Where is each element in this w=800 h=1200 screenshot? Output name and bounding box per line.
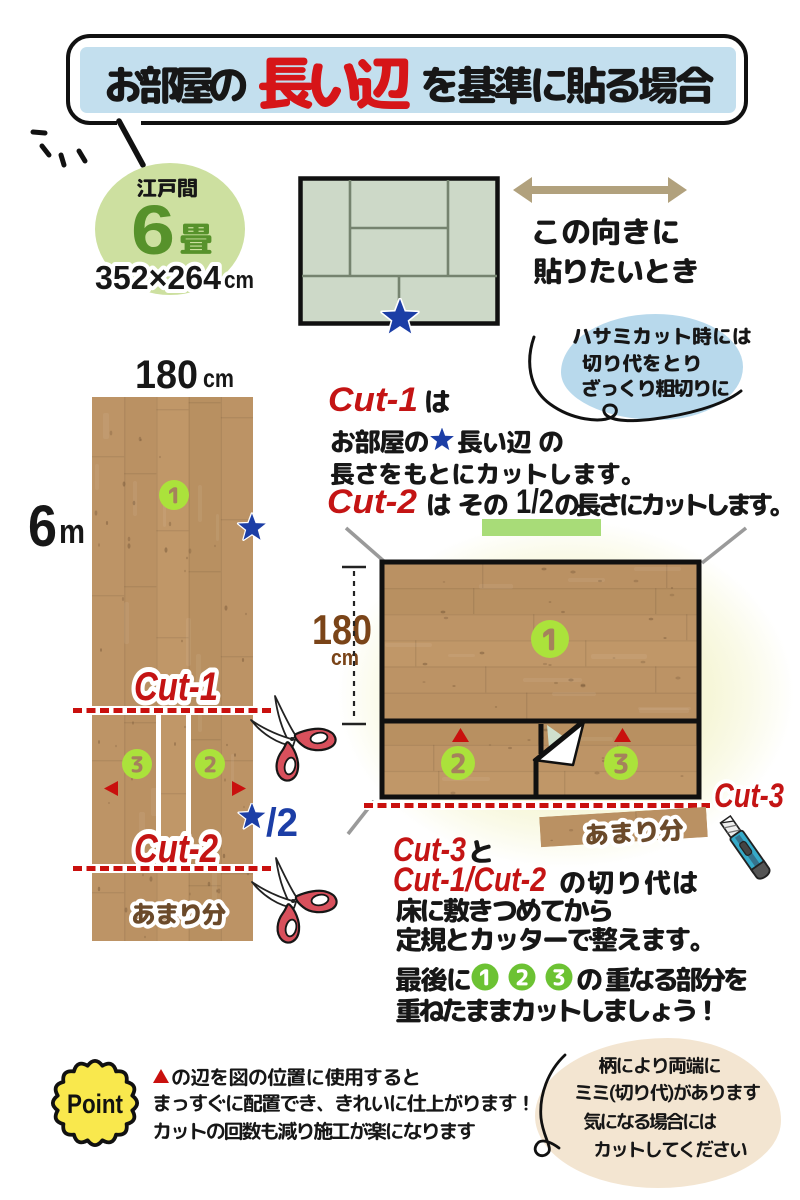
- svg-text:352×264: 352×264: [95, 259, 222, 296]
- svg-text:cm: cm: [224, 267, 254, 294]
- svg-text:m: m: [59, 513, 85, 551]
- svg-text:Cut-2: Cut-2: [327, 483, 417, 521]
- svg-text:Cut-1: Cut-1: [134, 665, 218, 709]
- svg-text:cm: cm: [203, 363, 234, 393]
- svg-text:Point: Point: [67, 1089, 123, 1119]
- svg-text:/2: /2: [266, 801, 298, 845]
- svg-text:Cut-1: Cut-1: [328, 381, 418, 419]
- svg-text:180: 180: [135, 353, 198, 397]
